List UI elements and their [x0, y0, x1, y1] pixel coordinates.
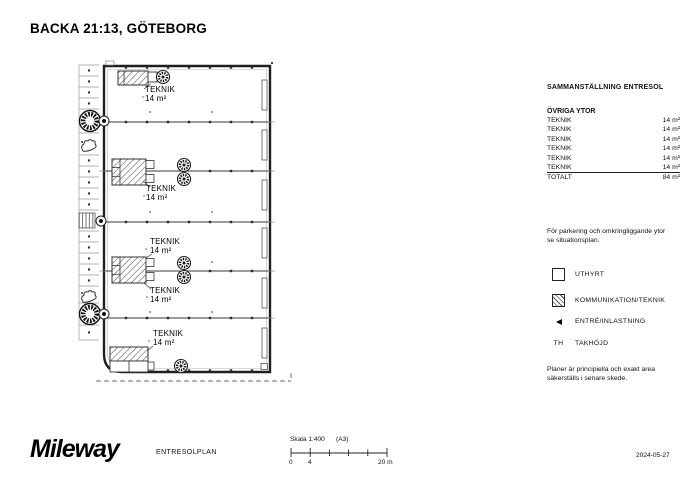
- legend-item-kommunikation: KOMMUNIKATION/TEKNIK: [552, 294, 665, 307]
- dashed-boundary: [96, 373, 291, 381]
- legend-item-takhojd: TH TAKHÖJD: [552, 340, 608, 347]
- table-total-row: TOTALT84 m²: [547, 172, 680, 182]
- scale-tick-4: 4: [308, 459, 312, 466]
- paper-size: (A3): [336, 436, 348, 443]
- column-post-icon: [99, 116, 109, 126]
- table-row: TEKNIK14 m²: [547, 163, 680, 172]
- table-row: TEKNIK14 m²: [547, 135, 680, 144]
- summary-section-header: ÖVRIGA YTOR: [547, 108, 680, 115]
- parking-note: För parkering och omkringliggande ytor s…: [547, 228, 667, 246]
- hand-symbol-icon: [81, 291, 96, 303]
- room-label: TEKNIK14 m²: [146, 185, 176, 202]
- table-row: TEKNIK14 m²: [547, 144, 680, 153]
- hatch-swatch-icon: [552, 294, 565, 307]
- building: [99, 61, 275, 372]
- disclaimer-note: Planer är principiella och exakt area sä…: [547, 366, 673, 384]
- scale-tick-0: 0: [289, 459, 293, 466]
- hand-symbol-icon: [81, 140, 96, 152]
- room-label: TEKNIK14 m²: [145, 86, 175, 103]
- room-label: TEKNIK14 m²: [153, 330, 183, 347]
- drawing-name: ENTRESOLPLAN: [156, 449, 217, 456]
- summary-table: SAMMANSTÄLLNING ENTRESOL ÖVRIGA YTOR TEK…: [547, 84, 680, 183]
- scale-label: Skala 1:400: [290, 436, 325, 443]
- summary-title: SAMMANSTÄLLNING ENTRESOL: [547, 84, 680, 91]
- takhojd-symbol: TH: [552, 340, 565, 347]
- scale-tick-20: 20 m: [378, 459, 393, 466]
- spiral-stair-icon: [178, 271, 191, 284]
- column-post-icon: [96, 216, 106, 226]
- legend-item-uthyrt: UTHYRT: [552, 268, 604, 281]
- spiral-stair-large-icon: [80, 111, 101, 132]
- spiral-stair-large-icon: [80, 304, 101, 325]
- legend: UTHYRT KOMMUNIKATION/TEKNIK ENTRÉ/INLAST…: [552, 268, 692, 358]
- sheet-date: 2024-05-27: [636, 452, 670, 459]
- entry-arrow-icon: [556, 319, 562, 325]
- spiral-stair-icon: [175, 360, 188, 373]
- room-label: TEKNIK14 m²: [150, 287, 180, 304]
- uthyrt-swatch-icon: [552, 268, 565, 281]
- room-label: TEKNIK14 m²: [150, 238, 180, 255]
- building-outline: [104, 66, 270, 372]
- legend-item-entre: ENTRÉ/INLASTNING: [552, 318, 646, 325]
- table-row: TEKNIK14 m²: [547, 125, 680, 134]
- mileway-logo: Mileway: [30, 435, 119, 464]
- scale-bar: [290, 447, 390, 459]
- spiral-stair-icon: [178, 173, 191, 186]
- column-post-icon: [99, 309, 109, 319]
- elevator-shaft: [79, 213, 95, 228]
- spiral-stair-icon: [178, 159, 191, 172]
- spiral-stair-icon: [157, 71, 170, 84]
- spiral-stair-icon: [178, 257, 191, 270]
- drawing-sheet: BACKA 21:13, GÖTEBORG: [0, 0, 700, 490]
- table-row: TEKNIK14 m²: [547, 116, 680, 125]
- table-row: TEKNIK14 m²: [547, 154, 680, 163]
